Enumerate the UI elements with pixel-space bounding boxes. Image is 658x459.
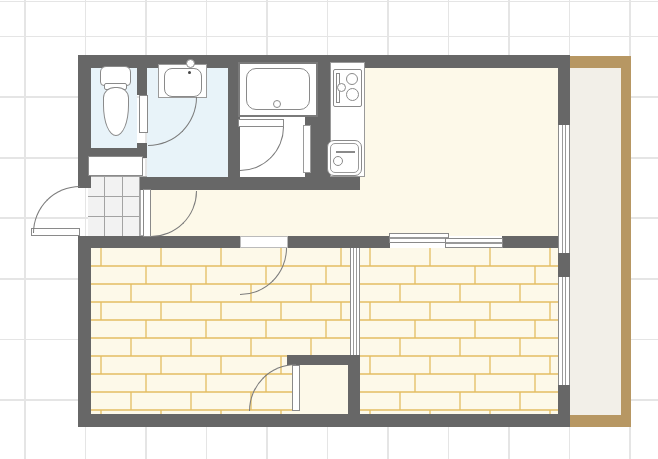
floor-plan-canvas [0, 0, 658, 459]
room-hallway [140, 190, 558, 236]
entrance-tile-floor [88, 176, 140, 236]
window-bedroom-top-panel-left [389, 233, 449, 243]
kitchen-sink-faucet-arm [336, 151, 355, 153]
wall-hall-bedroom-left [91, 236, 240, 248]
wall-outer-right-middle [558, 253, 570, 277]
wall-closet-right [348, 365, 360, 414]
wall-hall-bedroom-right [502, 236, 558, 248]
stove-burner-bottom [346, 88, 359, 101]
bathroom-side-door-leaf [303, 125, 311, 173]
wall-outer-bottom [78, 414, 570, 427]
toilet-door-leaf [139, 95, 148, 133]
window-bedroom-top-panel-right [445, 238, 503, 248]
stove-burner-small [337, 83, 346, 92]
washbasin-drain-dot [188, 71, 191, 74]
window-living-right [558, 125, 570, 253]
wall-outer-right-upper [558, 68, 570, 125]
bedroom-door-opening [240, 236, 288, 248]
shoe-cabinet [88, 156, 143, 176]
bathtub-drain [273, 100, 281, 108]
sliding-partition-bedrooms [350, 248, 360, 355]
wall-outer-right-lower [558, 385, 570, 414]
balcony-edge-right [621, 56, 631, 427]
wall-outer-left-lower [78, 236, 91, 427]
wall-toilet-right-upper [137, 68, 147, 95]
wall-closet-top [287, 355, 360, 365]
bathroom-door-leaf [238, 119, 284, 127]
closet-floor [300, 365, 348, 414]
wall-outer-top [78, 55, 570, 68]
balcony-floor [570, 68, 621, 415]
wall-middle-horizontal [140, 177, 360, 190]
entrance-hall-door-leaf [143, 189, 151, 237]
washbasin-bowl [164, 68, 202, 97]
stove-burner-top [346, 73, 358, 85]
balcony-edge-bottom [570, 415, 631, 427]
room-bedroom-right-wood-floor [360, 248, 558, 414]
floor-plan [0, 0, 658, 459]
front-door-swing-arc [33, 186, 80, 233]
window-bedroom-right [558, 277, 570, 385]
wall-hall-bedroom-middle [288, 236, 390, 248]
kitchen-sink-faucet [333, 156, 343, 166]
washbasin-faucet [186, 59, 195, 68]
